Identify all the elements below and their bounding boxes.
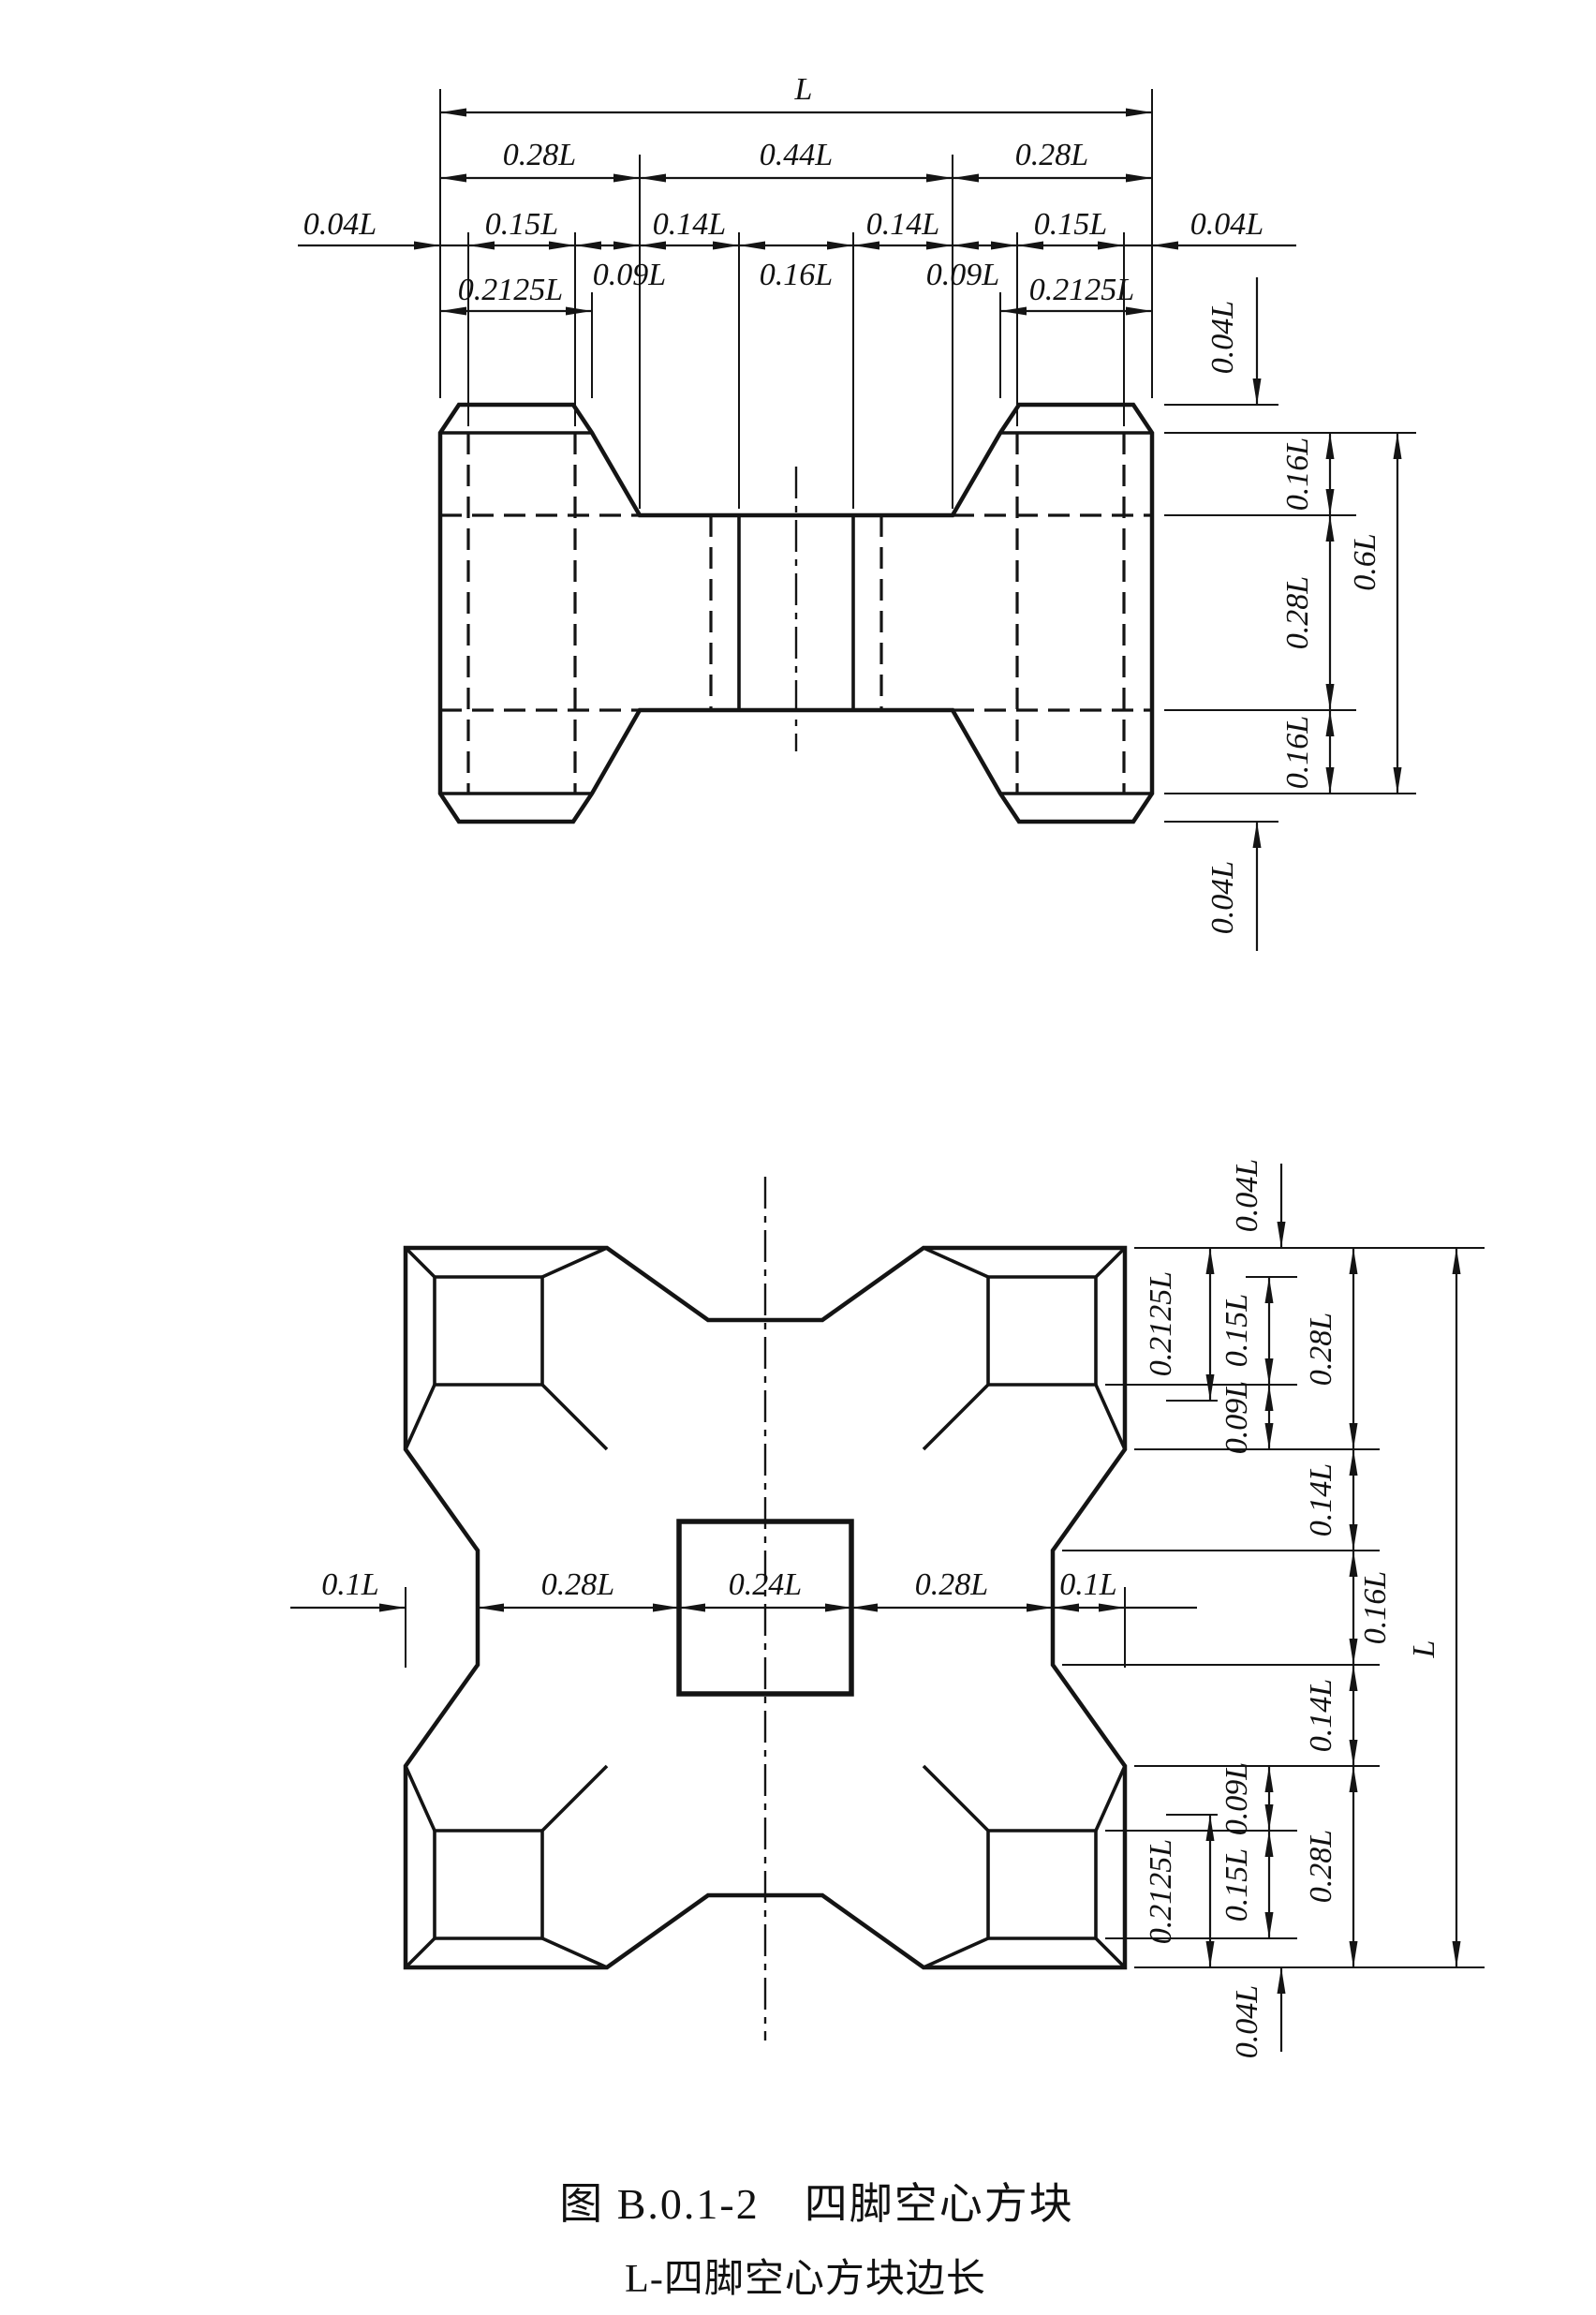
dim-label: 0.14L [866, 207, 939, 242]
figure-page: L 0.28L 0.44L 0.28L 0.04L 0.15L 0.14L 0.… [0, 0, 1596, 2315]
dim-label: 0.16L [760, 258, 833, 292]
plan-dimensions: 0.1L 0.28L 0.24L 0.28L 0.1L 0.2125L 0.21… [290, 1159, 1485, 2058]
dim-label: 0.04L [1230, 1985, 1264, 2058]
dim-label: 0.28L [915, 1567, 988, 1602]
dim-label: 0.04L [1190, 207, 1263, 242]
dim-label: 0.28L [1304, 1830, 1338, 1903]
dim-label: 0.15L [485, 207, 558, 242]
dim-label: 0.15L [1219, 1294, 1254, 1367]
dim-label: 0.04L [1230, 1159, 1264, 1232]
dim-label: 0.1L [321, 1567, 378, 1602]
dim-label: 0.2125L [1029, 273, 1134, 307]
dim-label: 0.04L [303, 207, 377, 242]
dim-label: 0.14L [653, 207, 726, 242]
dim-label: 0.28L [1280, 576, 1315, 649]
dim-label: 0.28L [1015, 138, 1088, 172]
technical-drawing: L 0.28L 0.44L 0.28L 0.04L 0.15L 0.14L 0.… [0, 0, 1596, 2315]
dim-label: 0.04L [1205, 861, 1240, 934]
elevation-view [440, 405, 1152, 822]
figure-caption: 图 B.0.1-2 四脚空心方块 L-四脚空心方块边长 [559, 2180, 1074, 2301]
dim-label: 0.16L [1280, 716, 1315, 789]
dim-label-total-length: L [794, 72, 813, 107]
dim-label: 0.14L [1304, 1679, 1338, 1752]
dim-label: 0.09L [1219, 1381, 1254, 1454]
dim-label: 0.15L [1034, 207, 1107, 242]
dim-label: 0.16L [1280, 438, 1315, 511]
dim-label: 0.6L [1348, 533, 1382, 590]
dim-label: 0.28L [503, 138, 576, 172]
dim-label: 0.24L [729, 1567, 802, 1602]
dim-label: 0.44L [760, 138, 833, 172]
dim-label: 0.15L [1219, 1848, 1254, 1922]
dim-label: 0.09L [926, 258, 999, 292]
dim-label: 0.2125L [1144, 1271, 1178, 1376]
dim-label: 0.09L [593, 258, 666, 292]
dim-label: L [1407, 1640, 1441, 1659]
dim-label: 0.2125L [1144, 1839, 1178, 1944]
dim-label: 0.16L [1358, 1571, 1393, 1644]
caption-title: 图 B.0.1-2 四脚空心方块 [559, 2180, 1074, 2228]
dim-label: 0.28L [1304, 1313, 1338, 1386]
dim-label: 0.04L [1205, 301, 1240, 374]
dim-label: 0.28L [541, 1567, 614, 1602]
dim-label: 0.09L [1219, 1762, 1254, 1835]
caption-legend: L-四脚空心方块边长 [625, 2257, 986, 2301]
dim-label: 0.14L [1304, 1463, 1338, 1536]
dim-label: 0.1L [1059, 1567, 1116, 1602]
dim-label: 0.2125L [458, 273, 563, 307]
elevation-dimensions: L 0.28L 0.44L 0.28L 0.04L 0.15L 0.14L 0.… [298, 72, 1416, 951]
